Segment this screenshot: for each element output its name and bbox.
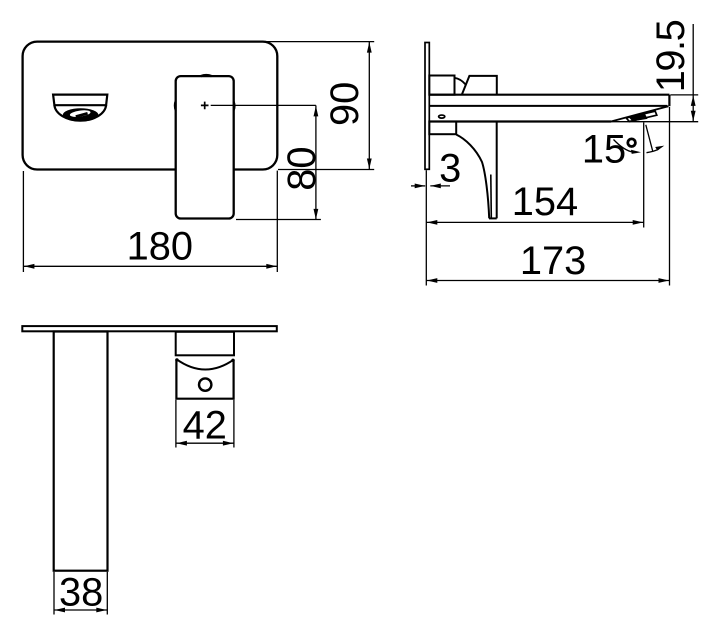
svg-text:42: 42 [183, 403, 227, 447]
svg-text:3: 3 [439, 147, 461, 191]
svg-text:38: 38 [59, 570, 103, 614]
svg-text:80: 80 [280, 146, 324, 190]
svg-text:173: 173 [520, 239, 586, 283]
svg-text:19.5: 19.5 [649, 20, 693, 92]
svg-text:180: 180 [127, 225, 193, 269]
svg-text:15: 15 [582, 127, 626, 171]
svg-text:154: 154 [512, 180, 578, 224]
svg-text:90: 90 [323, 82, 367, 126]
